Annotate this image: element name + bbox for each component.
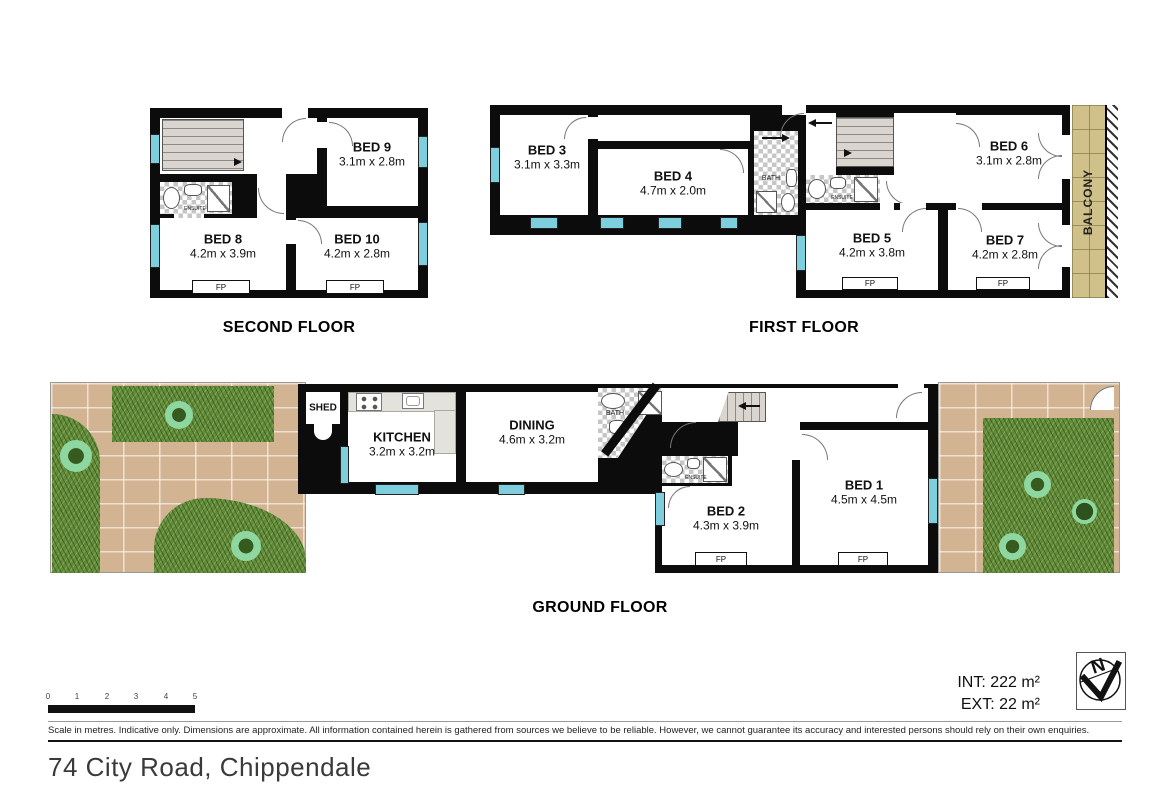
bush-icon xyxy=(999,533,1026,560)
disclaimer-bar: Scale in metres. Indicative only. Dimens… xyxy=(48,721,1122,742)
window xyxy=(340,446,349,484)
shower-icon xyxy=(756,191,777,213)
window xyxy=(655,492,665,526)
floorplan-second-floor: ENSUITE FP FP BED 9 3.1m x 2.8m BED 8 4.… xyxy=(150,108,428,298)
room-dims-bed1: 4.5m x 4.5m xyxy=(831,493,897,507)
room-dims-bed9: 3.1m x 2.8m xyxy=(339,155,405,169)
door-opening xyxy=(948,123,956,149)
direction-arrow-icon xyxy=(234,158,242,166)
scale-bar-rule xyxy=(48,705,195,713)
door-opening xyxy=(588,117,598,139)
scale-tick: 4 xyxy=(164,692,168,701)
room-label-bed2: BED 2 xyxy=(693,504,759,519)
window xyxy=(720,217,738,229)
room-label-kitchen: KITCHEN xyxy=(369,430,435,445)
scale-tick: 3 xyxy=(134,692,138,701)
backyard-grass xyxy=(112,386,274,442)
door-opening xyxy=(1062,225,1072,267)
bush-icon xyxy=(165,401,193,429)
balcony: BALCONY xyxy=(1072,105,1105,298)
room-dims-bed3: 3.1m x 3.3m xyxy=(514,158,580,172)
stairs-icon xyxy=(162,119,244,171)
fireplace-box: FP xyxy=(695,552,747,566)
room-label-bed6: BED 6 xyxy=(976,139,1042,154)
sink-icon xyxy=(830,177,846,189)
entry-arrow-line xyxy=(814,122,832,124)
toilet-icon xyxy=(781,193,795,212)
scale-tick: 1 xyxy=(75,692,79,701)
room-label-bed5: BED 5 xyxy=(839,231,905,246)
room-label-ensuite-ground: ENSUITE xyxy=(680,475,712,481)
fireplace-box: FP xyxy=(838,552,888,566)
north-arrow-icon: N xyxy=(1076,652,1126,710)
room-label-dining: DINING xyxy=(499,418,565,433)
second-floor-title: SECOND FLOOR xyxy=(150,318,428,338)
stairs-icon xyxy=(836,117,894,167)
bush-icon xyxy=(1072,499,1097,524)
fireplace-box: FP xyxy=(842,277,898,290)
fireplace-box: FP xyxy=(192,280,250,294)
area-external: EXT: 22 m² xyxy=(900,694,1040,716)
ground-floor-title: GROUND FLOOR xyxy=(450,598,750,618)
room-dims-bed4: 4.7m x 2.0m xyxy=(640,184,706,198)
area-summary: INT: 222 m² EXT: 22 m² xyxy=(900,672,1040,716)
toilet-icon xyxy=(601,393,625,409)
window xyxy=(150,134,160,164)
window xyxy=(150,224,160,268)
bush-icon xyxy=(1024,471,1051,498)
shower-icon xyxy=(207,185,230,212)
kitchen-sink-icon xyxy=(402,393,424,409)
room-dims-bed2: 4.3m x 3.9m xyxy=(693,519,759,533)
fireplace-box: FP xyxy=(976,277,1030,290)
room-label-shed: SHED xyxy=(309,403,337,414)
floorplan-ground-floor: SHED BATH ENSUITE FP xyxy=(50,380,1120,575)
sink-icon xyxy=(184,184,202,196)
window xyxy=(418,136,428,168)
room-label-bed8: BED 8 xyxy=(190,232,256,247)
room-label-bed10: BED 10 xyxy=(324,232,390,247)
sink-icon xyxy=(687,458,700,469)
direction-arrow-icon xyxy=(844,149,852,157)
room-label-ensuite-second: ENSUITE xyxy=(180,206,210,212)
first-floor-title: FIRST FLOOR xyxy=(490,318,1118,338)
room-label-bed1: BED 1 xyxy=(831,478,897,493)
room-label-bed3: BED 3 xyxy=(514,143,580,158)
scale-tick: 5 xyxy=(193,692,197,701)
scale-tick: 2 xyxy=(105,692,109,701)
window xyxy=(530,217,558,229)
door-opening xyxy=(282,108,308,118)
window xyxy=(796,235,806,271)
stove-icon xyxy=(356,393,382,411)
backyard-grass xyxy=(52,414,100,573)
window xyxy=(418,222,428,266)
window xyxy=(600,217,624,229)
room-dims-bed5: 4.2m x 3.8m xyxy=(839,246,905,260)
window xyxy=(498,484,525,495)
floorplan-first-floor: BATH ENSUITE xyxy=(490,105,1118,300)
door-opening xyxy=(898,384,924,392)
bush-icon xyxy=(231,531,261,561)
window xyxy=(928,478,938,524)
room-dims-dining: 4.6m x 3.2m xyxy=(499,433,565,447)
room-dims-bed7: 4.2m x 2.8m xyxy=(972,248,1038,262)
room-label-balcony: BALCONY xyxy=(1082,168,1096,234)
disclaimer-text: Scale in metres. Indicative only. Dimens… xyxy=(48,725,1122,736)
toilet-icon xyxy=(808,179,826,199)
room-label-bed7: BED 7 xyxy=(972,233,1038,248)
door-opening xyxy=(286,220,296,244)
kitchen-counter xyxy=(434,410,456,454)
room-label-bed9: BED 9 xyxy=(339,140,405,155)
first-corridor xyxy=(598,115,750,141)
room-label-bed4: BED 4 xyxy=(640,169,706,184)
sink-icon xyxy=(786,169,797,187)
scale-tick: 0 xyxy=(46,692,50,701)
room-dims-kitchen: 3.2m x 3.2m xyxy=(369,445,435,459)
address-title: 74 City Road, Chippendale xyxy=(48,752,371,782)
entry-arrow-line xyxy=(762,137,784,139)
toilet-icon xyxy=(163,187,180,209)
fireplace-box: FP xyxy=(326,280,384,294)
area-internal: INT: 222 m² xyxy=(900,672,1040,694)
bed2-entry xyxy=(732,456,792,486)
window xyxy=(490,147,500,183)
floorplan-page: ENSUITE FP FP BED 9 3.1m x 2.8m BED 8 4.… xyxy=(0,0,1170,785)
window xyxy=(375,484,419,495)
entry-arrow-line xyxy=(744,405,760,407)
room-dims-bed6: 3.1m x 2.8m xyxy=(976,154,1042,168)
door-opening xyxy=(317,122,327,148)
door-opening xyxy=(1062,135,1072,179)
scale-bar: 0 1 2 3 4 5 xyxy=(48,692,208,714)
room-label-bath-first: BATH xyxy=(756,175,786,183)
room-dims-bed10: 4.2m x 2.8m xyxy=(324,247,390,261)
room-label-ensuite-first: ENSUITE xyxy=(826,195,858,201)
window xyxy=(658,217,682,229)
balcony-edge-hatch xyxy=(1105,105,1118,298)
bush-icon xyxy=(60,440,92,472)
door-opening xyxy=(792,436,800,460)
room-dims-bed8: 4.2m x 3.9m xyxy=(190,247,256,261)
